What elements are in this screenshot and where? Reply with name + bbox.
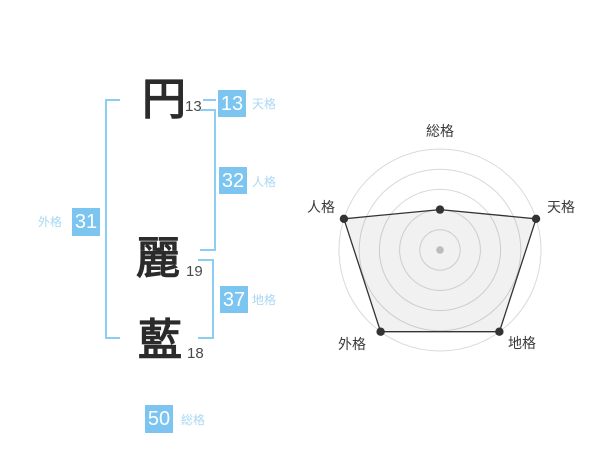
radar-vertex-dot [532, 215, 540, 223]
radar-axis-label: 外格 [338, 336, 366, 352]
name-character-2: 麗 [136, 237, 180, 281]
name-character-1: 円 [142, 78, 186, 122]
chikaku-label: 地格 [252, 294, 276, 306]
name-analysis-panel: 円 13 麗 19 藍 18 13 天格 32 人格 37 地格 外格 31 5… [0, 0, 600, 470]
radar-center-dot [436, 246, 444, 254]
radar-chart: 総格天格地格外格人格 [300, 115, 600, 375]
jinkaku-label: 人格 [252, 176, 276, 188]
gaikaku-value-badge: 31 [72, 208, 100, 236]
gaikaku-label: 外格 [38, 216, 62, 228]
radar-vertex-dot [376, 328, 384, 336]
gaikaku-bracket [105, 99, 120, 339]
radar-vertex-dot [436, 205, 444, 213]
radar-axis-label: 地格 [508, 335, 536, 351]
radar-vertex-dot [495, 328, 503, 336]
tenkaku-value-badge: 13 [218, 90, 246, 117]
jinkaku-bracket [200, 109, 216, 251]
chikaku-value-badge: 37 [220, 286, 248, 313]
soukaku-label: 総格 [181, 414, 205, 426]
tenkaku-connector-line [203, 99, 216, 101]
soukaku-value-badge: 50 [145, 405, 173, 433]
name-character-3: 藍 [138, 319, 182, 363]
radar-axis-label: 人格 [307, 199, 335, 215]
radar-vertex-dot [340, 215, 348, 223]
radar-polygon [344, 210, 536, 332]
radar-axis-label: 総格 [426, 123, 454, 139]
stroke-count-3: 18 [187, 346, 204, 361]
chikaku-bracket [198, 259, 214, 339]
jinkaku-value-badge: 32 [219, 167, 247, 194]
tenkaku-label: 天格 [252, 98, 276, 110]
radar-axis-label: 天格 [547, 199, 575, 215]
